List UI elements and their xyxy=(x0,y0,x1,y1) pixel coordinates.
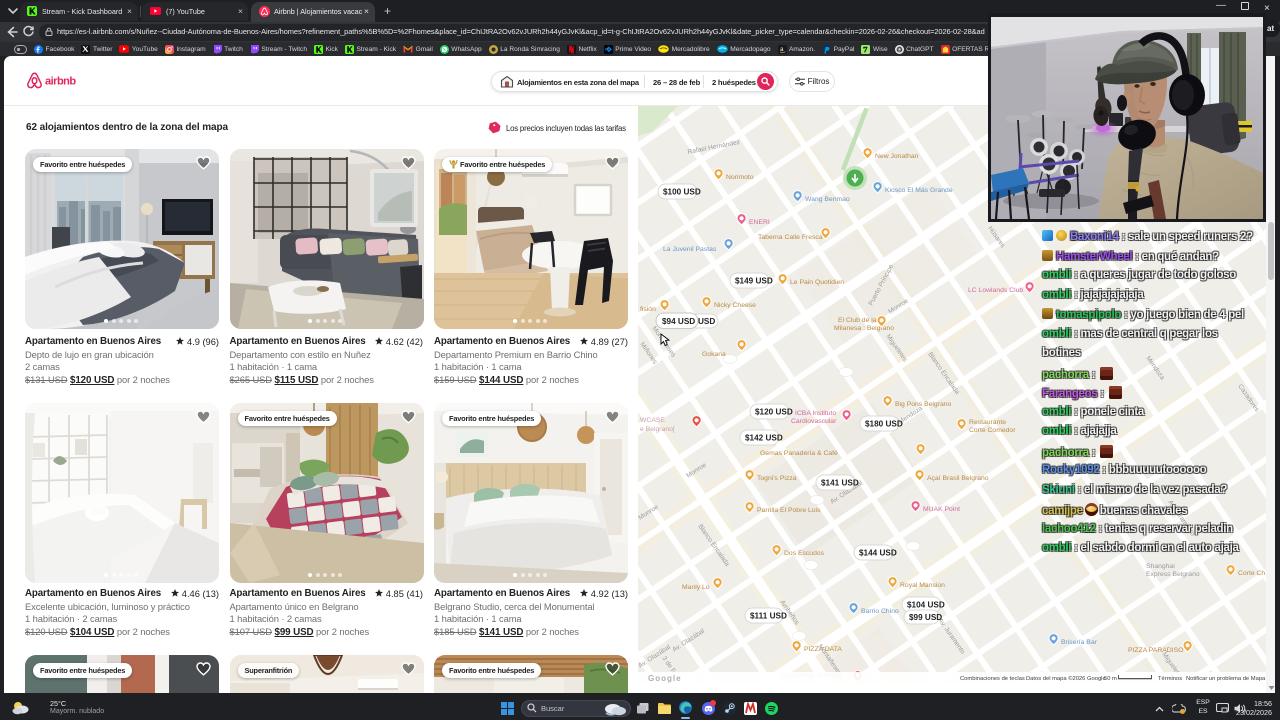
svg-text:Le Pain Quotidien: Le Pain Quotidien xyxy=(790,279,844,286)
svg-text:Restaurante: Restaurante xyxy=(969,419,1006,426)
svg-text:ICBA Instituto: ICBA Instituto xyxy=(795,410,836,417)
svg-text:Togni's Pizza: Togni's Pizza xyxy=(757,475,797,482)
svg-text:Milanesa : Belgrano: Milanesa : Belgrano xyxy=(834,325,894,332)
svg-text:Combinaciones de teclas: Combinaciones de teclas xyxy=(960,676,1025,682)
svg-text:El Club de la: El Club de la xyxy=(838,317,877,324)
svg-text:$99 USD: $99 USD xyxy=(909,613,942,622)
svg-text:$94 USD: $94 USD xyxy=(662,317,695,326)
svg-text:Dos Escudos: Dos Escudos xyxy=(784,550,825,557)
svg-text:$142 USD: $142 USD xyxy=(745,434,783,443)
svg-text:e Belgrano[: e Belgrano[ xyxy=(640,426,675,433)
svg-text:Manly Lo: Manly Lo xyxy=(682,584,710,591)
svg-text:ENERI: ENERI xyxy=(749,219,770,226)
svg-text:La Juvenil Pastas: La Juvenil Pastas xyxy=(663,246,717,253)
svg-text:Gokana: Gokana xyxy=(702,351,726,358)
svg-text:USD: USD xyxy=(698,317,715,326)
svg-text:$111 USD: $111 USD xyxy=(750,612,787,621)
svg-text:$144 USD: $144 USD xyxy=(859,549,897,558)
svg-text:Google: Google xyxy=(648,674,682,683)
svg-text:LC Lowlands Club: LC Lowlands Club xyxy=(968,287,1023,294)
svg-text:Cardiovascular: Cardiovascular xyxy=(791,418,837,425)
svg-text:Royal Mansion: Royal Mansion xyxy=(900,582,945,589)
svg-text:Wang Benmao: Wang Benmao xyxy=(805,196,850,203)
svg-text:Parrilla El Pobre Luis: Parrilla El Pobre Luis xyxy=(757,507,821,514)
svg-text:Big Pons Belgrano: Big Pons Belgrano xyxy=(895,401,952,408)
svg-text:$149 USD: $149 USD xyxy=(735,277,773,286)
svg-text:Corte Comedor: Corte Comedor xyxy=(969,427,1016,434)
svg-text:$180 USD: $180 USD xyxy=(865,420,903,429)
svg-text:$100 USD: $100 USD xyxy=(663,188,701,197)
svg-text:Barrio Chino: Barrio Chino xyxy=(861,608,899,615)
svg-text:Kiosco El Más Grande: Kiosco El Más Grande xyxy=(885,187,953,194)
svg-text:airbnb: airbnb xyxy=(45,76,76,88)
svg-text:$104 USD: $104 USD xyxy=(907,601,945,610)
svg-text:$120 USD: $120 USD xyxy=(755,408,793,417)
svg-text:WCASE: WCASE xyxy=(640,417,665,424)
svg-text:Nicky Cheese: Nicky Cheese xyxy=(714,302,756,309)
svg-text:fisión: fisión xyxy=(640,306,656,313)
svg-text:Taberna Calle Fresca: Taberna Calle Fresca xyxy=(758,234,823,241)
svg-text:Açaí Brasil Belgrano: Açaí Brasil Belgrano xyxy=(927,475,989,482)
svg-text:Gemas Panadería & Café: Gemas Panadería & Café xyxy=(760,450,838,457)
svg-text:MUAK Point: MUAK Point xyxy=(923,506,960,513)
svg-text:$141 USD: $141 USD xyxy=(821,479,859,488)
svg-text:Norimoto: Norimoto xyxy=(726,174,754,181)
svg-text:New Jonathan: New Jonathan xyxy=(875,153,919,160)
